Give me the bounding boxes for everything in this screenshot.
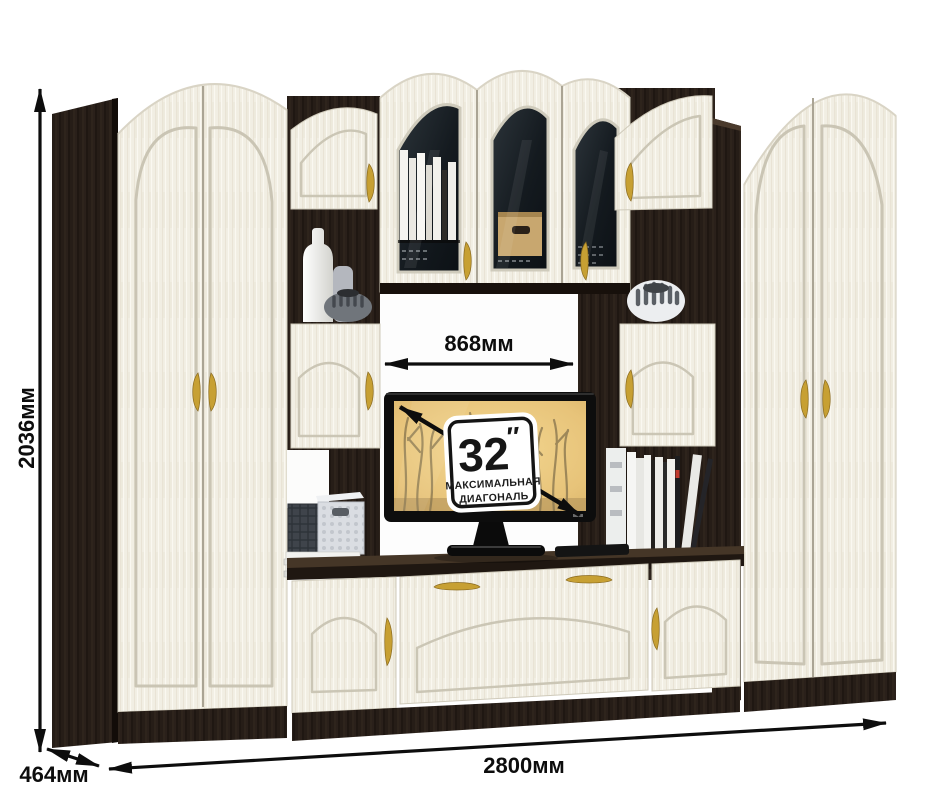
height-dimension: 2036мм (14, 89, 40, 752)
base-cabinets (287, 546, 744, 741)
drawer-handle (566, 576, 612, 584)
depth-dimension-label: 464мм (19, 762, 88, 787)
striped-vase (627, 280, 685, 322)
width-dimension-label: 2800мм (483, 753, 565, 778)
drawer-handle (434, 583, 480, 591)
tv-size-badge: 32 ″ МАКСИМАЛЬНАЯ ДИАГОНАЛЬ (442, 412, 542, 514)
left-wardrobe (118, 84, 287, 744)
middle-cabinet-door (620, 324, 715, 446)
glass-display-cabinet (380, 71, 630, 294)
base-left-door (292, 577, 396, 713)
tv-diagonal-prime: ″ (506, 422, 521, 453)
furniture-diagram-svg: 2036мм 464мм 2800мм 868мм 32 ″ МАКСИМАЛЬ… (0, 0, 940, 807)
right-wardrobe (744, 94, 896, 712)
left-side-panel (52, 98, 118, 748)
tv-diagonal-value: 32 (457, 427, 511, 482)
product-dimension-image: 2036мм 464мм 2800мм 868мм 32 ″ МАКСИМАЛЬ… (0, 0, 940, 807)
depth-dimension: 464мм (19, 749, 99, 787)
niche-width-dimension-label: 868мм (444, 331, 513, 356)
height-dimension-label: 2036мм (14, 387, 39, 469)
left-wardrobe-plinth (118, 706, 287, 744)
